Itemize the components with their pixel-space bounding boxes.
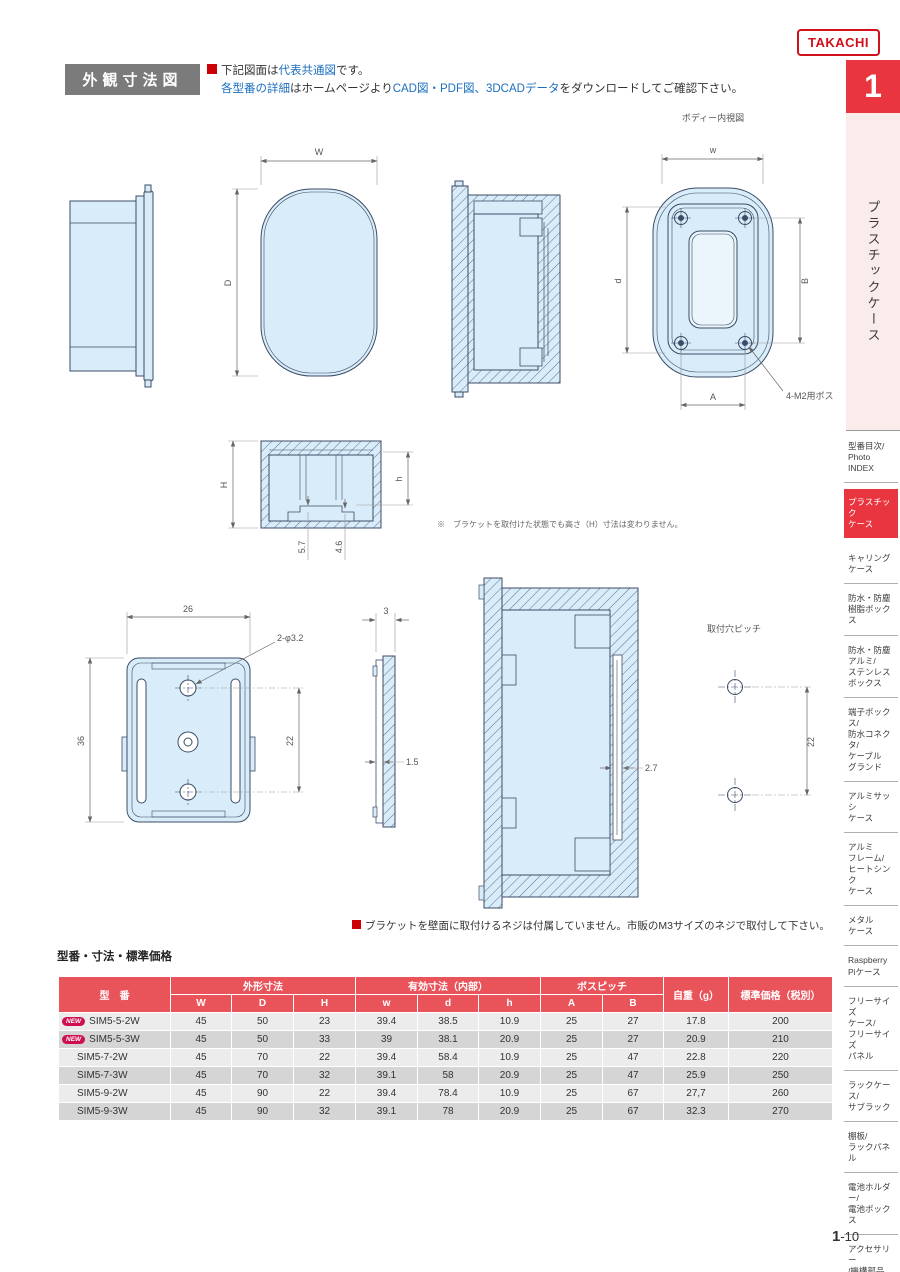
value-cell: 32: [294, 1103, 356, 1121]
value-cell: 27: [603, 1031, 664, 1049]
dim-5-7: 5.7: [297, 541, 307, 554]
table-row: NEWSIM5-5-2W45502339.438.510.9252717.820…: [59, 1013, 833, 1031]
value-cell: 39: [356, 1031, 418, 1049]
col-w: w: [356, 995, 418, 1013]
model-cell: NEWSIM5-5-2W: [59, 1013, 171, 1031]
model-cell: NEWSIM5-5-3W: [59, 1031, 171, 1049]
col-group-outer: 外形寸法: [171, 977, 356, 995]
value-cell: 32: [294, 1067, 356, 1085]
pitch-title: 取付穴ピッチ: [707, 623, 761, 634]
dim-H: H: [219, 482, 229, 489]
height-note: ※ ブラケットを取付けた状態でも高さ（H）寸法は変わりません。: [437, 519, 683, 530]
value-cell: 90: [232, 1103, 294, 1121]
model-cell: SIM5-9-2W: [59, 1085, 171, 1103]
table-row: SIM5-9-2W45902239.478.410.9256727,7260: [59, 1085, 833, 1103]
dim-26: 26: [183, 604, 193, 614]
value-cell: 20.9: [479, 1031, 541, 1049]
value-cell: 78: [418, 1103, 479, 1121]
dim-3: 3: [383, 606, 388, 616]
value-cell: 67: [603, 1103, 664, 1121]
col-A: A: [541, 995, 603, 1013]
value-cell: 33: [294, 1031, 356, 1049]
value-cell: 45: [171, 1085, 232, 1103]
table-row: NEWSIM5-5-3W4550333938.120.9252720.9210: [59, 1031, 833, 1049]
col-B: B: [603, 995, 664, 1013]
drawing-bracket-plate: 26 36 22 2-φ3.2: [76, 604, 304, 822]
dim-h: h: [394, 476, 404, 481]
value-cell: 220: [729, 1049, 833, 1067]
dim-W: W: [315, 147, 324, 157]
bracket-note-text: ブラケットを壁面に取付けるネジは付属していません。市販のM3サイズのネジで取付し…: [365, 920, 830, 932]
value-cell: 27,7: [664, 1085, 729, 1103]
value-cell: 25: [541, 1067, 603, 1085]
drawing-body-internal-view: ボディー内視図 w d: [613, 112, 834, 410]
value-cell: 39.1: [356, 1103, 418, 1121]
bracket-note: ブラケットを壁面に取付けるネジは付属していません。市販のM3サイズのネジで取付し…: [352, 918, 830, 933]
drawing-small-section: [452, 181, 560, 397]
value-cell: 38.5: [418, 1013, 479, 1031]
dim-2-7: 2.7: [645, 763, 658, 773]
value-cell: 10.9: [479, 1085, 541, 1103]
col-group-inner: 有効寸法（内部）: [356, 977, 541, 995]
value-cell: 20.9: [664, 1031, 729, 1049]
col-H: H: [294, 995, 356, 1013]
col-W: W: [171, 995, 232, 1013]
value-cell: 200: [729, 1013, 833, 1031]
value-cell: 70: [232, 1067, 294, 1085]
value-cell: 90: [232, 1085, 294, 1103]
value-cell: 50: [232, 1013, 294, 1031]
value-cell: 45: [171, 1067, 232, 1085]
drawing-top-view: W D: [223, 147, 377, 376]
value-cell: 47: [603, 1067, 664, 1085]
red-square-icon: [352, 920, 361, 929]
value-cell: 20.9: [479, 1103, 541, 1121]
value-cell: 20.9: [479, 1067, 541, 1085]
value-cell: 38.1: [418, 1031, 479, 1049]
value-cell: 32.3: [664, 1103, 729, 1121]
value-cell: 70: [232, 1049, 294, 1067]
dim-22-bracket: 22: [285, 736, 295, 746]
value-cell: 22.8: [664, 1049, 729, 1067]
col-group-boss: ボスピッチ: [541, 977, 664, 995]
catalog-page: TAKACHI 外観寸法図 下記図面は代表共通図です。 各型番の詳細はホームペー…: [0, 0, 900, 1272]
value-cell: 22: [294, 1085, 356, 1103]
value-cell: 47: [603, 1049, 664, 1067]
hole-label: 2-φ3.2: [277, 633, 303, 643]
dim-A: A: [710, 392, 716, 402]
value-cell: 58.4: [418, 1049, 479, 1067]
model-cell: SIM5-7-2W: [59, 1049, 171, 1067]
drawing-bracket-side: 3 1.5: [362, 606, 419, 827]
value-cell: 58: [418, 1067, 479, 1085]
value-cell: 27: [603, 1013, 664, 1031]
col-weight: 自重（g）: [664, 977, 729, 1013]
table-header-row-1: 型 番 外形寸法 有効寸法（内部） ボスピッチ 自重（g） 標準価格（税別）: [59, 977, 833, 995]
model-cell: SIM5-7-3W: [59, 1067, 171, 1085]
value-cell: 39.1: [356, 1067, 418, 1085]
value-cell: 17.8: [664, 1013, 729, 1031]
value-cell: 25: [541, 1103, 603, 1121]
value-cell: 25: [541, 1049, 603, 1067]
price-table: 型 番 外形寸法 有効寸法（内部） ボスピッチ 自重（g） 標準価格（税別） W…: [58, 976, 833, 1121]
table-row: SIM5-9-3W45903239.17820.9256732.3270: [59, 1103, 833, 1121]
new-badge: NEW: [62, 1017, 85, 1026]
table-title: 型番・寸法・標準価格: [57, 948, 172, 964]
col-h: h: [479, 995, 541, 1013]
value-cell: 25: [541, 1013, 603, 1031]
drawing-large-section: 2.7: [479, 578, 658, 908]
value-cell: 25.9: [664, 1067, 729, 1085]
value-cell: 250: [729, 1067, 833, 1085]
value-cell: 23: [294, 1013, 356, 1031]
dim-4-6: 4.6: [334, 541, 344, 554]
col-d: d: [418, 995, 479, 1013]
value-cell: 25: [541, 1031, 603, 1049]
value-cell: 78.4: [418, 1085, 479, 1103]
value-cell: 210: [729, 1031, 833, 1049]
drawing-mounting-pitch: 取付穴ピッチ 22: [707, 623, 816, 812]
value-cell: 10.9: [479, 1013, 541, 1031]
new-badge: NEW: [62, 1035, 85, 1044]
boss-note: 4-M2用ボス: [786, 391, 834, 401]
body-view-title: ボディー内視図: [682, 112, 744, 123]
value-cell: 260: [729, 1085, 833, 1103]
value-cell: 45: [171, 1103, 232, 1121]
dim-d: d: [613, 278, 623, 283]
value-cell: 39.4: [356, 1049, 418, 1067]
value-cell: 67: [603, 1085, 664, 1103]
col-model: 型 番: [59, 977, 171, 1013]
value-cell: 25: [541, 1085, 603, 1103]
value-cell: 39.4: [356, 1085, 418, 1103]
model-cell: SIM5-9-3W: [59, 1103, 171, 1121]
value-cell: 270: [729, 1103, 833, 1121]
dim-D: D: [223, 279, 233, 286]
value-cell: 45: [171, 1013, 232, 1031]
dim-w: w: [709, 145, 717, 155]
price-table-body: NEWSIM5-5-2W45502339.438.510.9252717.820…: [59, 1013, 833, 1121]
drawing-side-view: [70, 185, 153, 387]
col-D: D: [232, 995, 294, 1013]
value-cell: 45: [171, 1049, 232, 1067]
value-cell: 39.4: [356, 1013, 418, 1031]
dim-B: B: [800, 278, 810, 284]
dim-1-5: 1.5: [406, 757, 419, 767]
col-price: 標準価格（税別）: [729, 977, 833, 1013]
table-row: SIM5-7-2W45702239.458.410.9254722.8220: [59, 1049, 833, 1067]
value-cell: 50: [232, 1031, 294, 1049]
dim-36: 36: [76, 736, 86, 746]
table-row: SIM5-7-3W45703239.15820.9254725.9250: [59, 1067, 833, 1085]
value-cell: 22: [294, 1049, 356, 1067]
drawing-height-section: H h 5.7 4.6: [219, 441, 413, 560]
value-cell: 45: [171, 1031, 232, 1049]
value-cell: 10.9: [479, 1049, 541, 1067]
dim-22-pitch: 22: [806, 737, 816, 747]
